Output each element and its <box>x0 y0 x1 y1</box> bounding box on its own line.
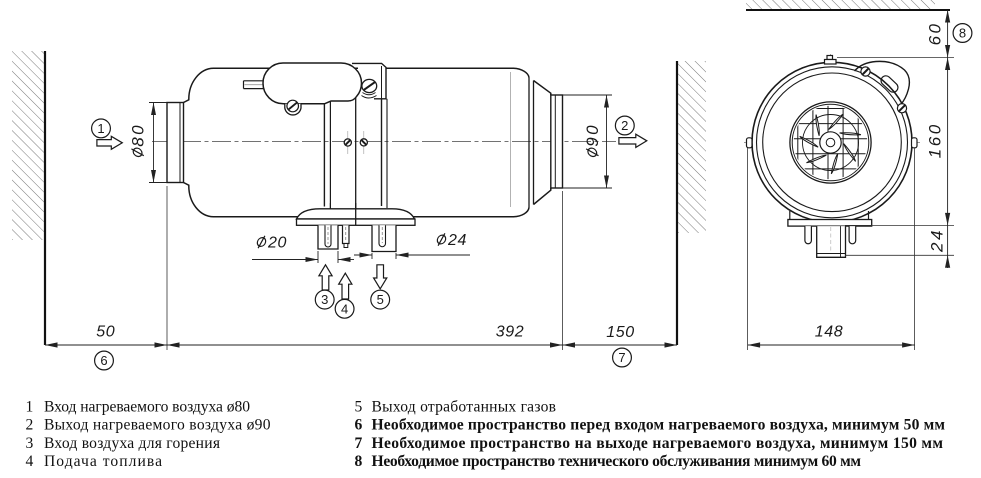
svg-text:1: 1 <box>26 398 34 415</box>
svg-text:1: 1 <box>97 121 104 136</box>
svg-text:150: 150 <box>606 324 635 341</box>
svg-text:2: 2 <box>621 118 628 133</box>
svg-text:8: 8 <box>355 453 363 470</box>
svg-text:Вход воздуха для горения: Вход воздуха для горения <box>44 435 220 452</box>
svg-text:3: 3 <box>321 292 328 307</box>
svg-text:60: 60 <box>926 21 945 45</box>
svg-text:Необходимое пространство на вы: Необходимое пространство на выходе нагре… <box>372 435 944 452</box>
svg-text:Вход нагреваемого воздуха ø80: Вход нагреваемого воздуха ø80 <box>44 398 250 415</box>
svg-text:4: 4 <box>26 453 34 470</box>
svg-text:160: 160 <box>926 122 945 158</box>
svg-text:5: 5 <box>355 398 363 415</box>
svg-text:50: 50 <box>96 324 115 341</box>
svg-text:8: 8 <box>959 26 966 41</box>
svg-text:6: 6 <box>355 417 363 434</box>
svg-text:Подача топлива: Подача топлива <box>44 453 162 470</box>
svg-text:Выход отработанных газов: Выход отработанных газов <box>372 398 557 415</box>
svg-text:Выход нагреваемого воздуха ø90: Выход нагреваемого воздуха ø90 <box>44 417 271 434</box>
svg-text:Необходимое пространство перед: Необходимое пространство перед входом на… <box>372 417 946 434</box>
svg-text:80: 80 <box>128 123 147 147</box>
svg-text:2: 2 <box>26 417 34 434</box>
svg-text:20: 20 <box>267 235 287 252</box>
svg-text:24: 24 <box>928 228 947 253</box>
svg-text:24: 24 <box>447 232 467 249</box>
svg-text:90: 90 <box>583 123 602 147</box>
svg-text:6: 6 <box>100 353 107 368</box>
svg-text:392: 392 <box>496 324 525 341</box>
svg-text:7: 7 <box>355 435 363 452</box>
svg-text:Необходимое пространство техни: Необходимое пространство технического об… <box>372 453 862 470</box>
svg-text:148: 148 <box>815 324 844 341</box>
svg-text:7: 7 <box>618 350 625 365</box>
svg-text:5: 5 <box>377 292 384 307</box>
svg-text:3: 3 <box>26 435 34 452</box>
svg-text:4: 4 <box>341 301 348 316</box>
